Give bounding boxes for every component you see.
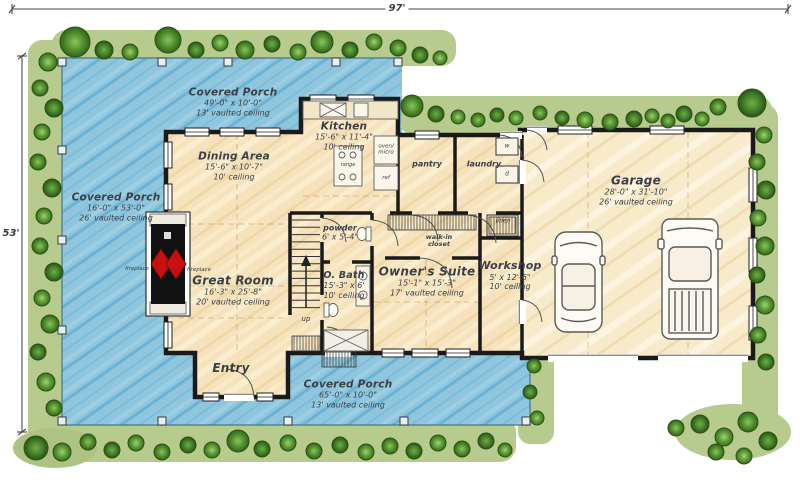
tree-icon [676, 106, 692, 122]
porch-post [332, 58, 340, 66]
tree-icon [24, 436, 48, 460]
oven-icon [374, 136, 398, 164]
tree-icon [433, 51, 447, 65]
tree-icon [626, 111, 642, 127]
tree-icon [311, 31, 333, 53]
tree-icon [382, 438, 398, 454]
tree-icon [708, 444, 724, 460]
window [164, 322, 172, 348]
tree-icon [661, 114, 675, 128]
tree-icon [34, 290, 50, 306]
door-opening [224, 393, 254, 401]
tree-icon [155, 27, 181, 53]
porch-post [400, 417, 408, 425]
tree-icon [555, 111, 569, 125]
tree-icon [749, 267, 765, 283]
tree-icon [41, 315, 59, 333]
tree-icon [36, 208, 52, 224]
tree-icon [451, 110, 465, 124]
tree-icon [527, 359, 541, 373]
tree-icon [32, 80, 48, 96]
kitchen-island [334, 146, 362, 186]
tree-icon [188, 42, 204, 58]
tree-icon [60, 27, 90, 57]
tree-icon [401, 95, 423, 117]
tree-icon [95, 41, 113, 59]
tree-icon [34, 124, 50, 140]
door-opening [518, 160, 526, 184]
tree-icon [128, 435, 144, 451]
tree-icon [530, 411, 544, 425]
tree-icon [498, 443, 512, 457]
tree-icon [759, 432, 777, 450]
tree-icon [32, 238, 48, 254]
tree-icon [533, 106, 547, 120]
door-opening [518, 300, 526, 324]
dryer-icon [496, 166, 518, 183]
tree-icon [180, 437, 196, 453]
porch-post [158, 58, 166, 66]
tree-icon [342, 42, 358, 58]
porch-post [58, 417, 66, 425]
tree-icon [406, 443, 422, 459]
fireplace-icon [146, 212, 190, 316]
door-opening [548, 354, 638, 362]
tree-icon [738, 412, 758, 432]
tree-icon [478, 433, 494, 449]
tree-icon [756, 237, 774, 255]
tree-icon [254, 441, 270, 457]
porch-post [58, 146, 66, 154]
window [220, 128, 244, 136]
tree-icon [358, 444, 374, 460]
tree-icon [750, 210, 766, 226]
tree-icon [756, 296, 774, 314]
tree-icon [736, 448, 752, 464]
porch-post [284, 417, 292, 425]
toilet-icon [328, 304, 338, 317]
tree-icon [43, 179, 61, 197]
tree-icon [430, 435, 446, 451]
tree-icon [756, 127, 772, 143]
tree-icon [471, 113, 485, 127]
tree-icon [390, 40, 406, 56]
tree-icon [332, 437, 348, 453]
window [203, 393, 219, 401]
tree-icon [523, 385, 537, 399]
porch-post [58, 326, 66, 334]
tree-icon [280, 435, 296, 451]
toilet-icon [357, 228, 367, 241]
tree-icon [412, 47, 428, 63]
tree-icon [46, 400, 62, 416]
tree-icon [290, 44, 306, 60]
tree-icon [30, 344, 46, 360]
porch-post [158, 417, 166, 425]
window [256, 128, 280, 136]
window [382, 349, 404, 357]
window [164, 184, 172, 210]
tree-icon [757, 181, 775, 199]
porch-post [224, 58, 232, 66]
truck-icon [658, 219, 722, 339]
tree-icon [645, 109, 659, 123]
window [185, 128, 209, 136]
window [749, 168, 757, 202]
tree-icon [749, 154, 765, 170]
tree-icon [366, 34, 382, 50]
tree-icon [80, 434, 96, 450]
tree-icon [454, 441, 470, 457]
tree-icon [154, 444, 170, 460]
porch-post [394, 58, 402, 66]
porch-post [522, 417, 530, 425]
porch-post [58, 58, 66, 66]
tree-icon [758, 354, 774, 370]
tree-icon [104, 442, 120, 458]
window [446, 349, 470, 357]
tree-icon [490, 108, 504, 122]
tree-icon [39, 53, 57, 71]
tree-icon [668, 420, 684, 436]
door-opening [658, 354, 748, 362]
floor-plan: 97' 53' Covered Porch 49'-0" x 10'-0" 13… [0, 0, 800, 489]
tree-icon [715, 428, 733, 446]
tree-icon [750, 327, 766, 343]
tree-icon [212, 35, 228, 51]
tree-icon [204, 442, 220, 458]
tree-icon [695, 112, 709, 126]
tree-icon [53, 443, 71, 461]
tree-icon [577, 112, 593, 128]
tree-icon [30, 154, 46, 170]
window [257, 393, 273, 401]
tree-icon [602, 114, 618, 130]
window [415, 131, 439, 139]
sedan-icon [552, 232, 605, 332]
tree-icon [428, 106, 444, 122]
tree-icon [37, 373, 55, 391]
tree-icon [738, 89, 766, 117]
tree-icon [306, 443, 322, 459]
tree-icon [236, 41, 254, 59]
tree-icon [45, 263, 63, 281]
tree-icon [710, 99, 726, 115]
window [164, 142, 172, 168]
tree-icon [691, 415, 709, 433]
porch-post [58, 236, 66, 244]
tree-icon [122, 44, 138, 60]
washer-icon [496, 138, 518, 155]
window [412, 349, 438, 357]
fridge-icon [374, 166, 398, 190]
tree-icon [264, 36, 280, 52]
tree-icon [45, 99, 63, 117]
tree-icon [227, 430, 249, 452]
closet-rod-hatch [322, 352, 356, 367]
floor-plan-drawing [0, 0, 800, 489]
tree-icon [509, 111, 523, 125]
